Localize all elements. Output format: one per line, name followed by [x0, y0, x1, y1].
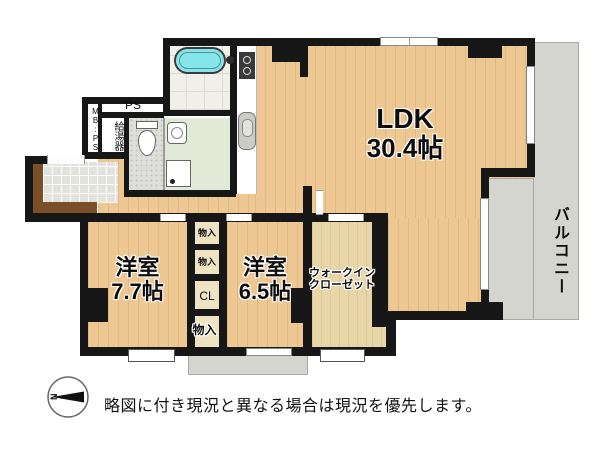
wall-bedroom-left-outer [80, 218, 88, 356]
wall-storage-divider-2 [190, 274, 224, 281]
water-heater-label: 給湯器 [104, 119, 122, 153]
window-bedroom-center [246, 348, 292, 356]
wall-ps-bottom [100, 112, 164, 118]
wall-storage-divider-1 [190, 244, 224, 250]
compass-icon: N [46, 375, 90, 419]
wall-left-outer [25, 156, 33, 219]
compass-north-letter: N [49, 394, 59, 401]
bedroom-left-door [160, 214, 186, 221]
bathtub-icon [174, 47, 226, 74]
stove-burner-2 [243, 67, 251, 75]
wall-washroom-bottom [124, 190, 236, 197]
compass: N [46, 375, 90, 419]
bedroom-left-size: 7.7帖 [88, 280, 187, 304]
washbasin-icon [167, 122, 187, 144]
storage-bottom-label: 物入 [188, 324, 221, 337]
disclaimer-text: 略図に付き現況と異なる場合は現況を優先します。 [104, 392, 564, 416]
floorplan-canvas: LDK 30.4帖 洋室 7.7帖 洋室 6.5帖 ウォークイン クローゼット … [0, 0, 600, 450]
wall-mbps-bottom [82, 152, 128, 159]
pipe-space-label: PS [102, 99, 164, 112]
storage-top-label: 物入 [193, 229, 221, 239]
wall-pillar-bottom-right [466, 302, 503, 320]
window-bedroom-left [128, 349, 175, 362]
kitchen-sink-icon [238, 112, 256, 150]
window-top-mullion [409, 37, 410, 46]
wall-bath-left [163, 38, 170, 116]
bathtub-inner-line [179, 52, 221, 69]
bedroom-center-door [226, 214, 252, 221]
balcony-door-right [480, 198, 489, 290]
washing-machine-drain [170, 179, 175, 184]
stove-burner-1 [243, 56, 251, 64]
genkan-tile [43, 162, 118, 203]
entrance-door [47, 155, 85, 164]
wall-step-right [481, 168, 535, 177]
wic-line2: クローゼット [303, 280, 381, 292]
window-right-upper [526, 66, 535, 144]
wall-pillar-top-mid-tail [300, 62, 308, 77]
hall-ldk-door [316, 190, 323, 215]
wall-pillar-top-right [468, 38, 502, 58]
bath-faucet-icon [226, 56, 234, 64]
bedroom-left-label: 洋室 7.7帖 [88, 256, 187, 304]
stove-icon [239, 52, 255, 79]
kitchen-sink-basin [242, 119, 253, 137]
balcony-label: バルコニー [546, 188, 568, 313]
washing-machine-pan-icon [166, 160, 191, 187]
genkan-frame-horizontal [33, 202, 97, 213]
wall-toilet-washroom-divider [163, 118, 165, 190]
bedroom-center-label: 洋室 6.5帖 [227, 256, 303, 304]
bedroom-left-name: 洋室 [88, 256, 187, 280]
ldk-size: 30.4帖 [330, 134, 480, 162]
closet-label: CL [193, 290, 221, 303]
storage-mid-label: 物入 [193, 258, 221, 268]
wall-toilet-left [124, 116, 129, 194]
wall-ldk-bottom [386, 311, 468, 320]
ldk-name: LDK [330, 104, 480, 134]
balcony-bottom-small [188, 355, 308, 375]
wall-bath-bottom [163, 110, 236, 116]
washbasin-bowl [171, 127, 183, 139]
wall-hall-ldk [303, 186, 312, 216]
ldk-label: LDK 30.4帖 [330, 104, 480, 162]
walk-in-closet-door [328, 214, 364, 221]
wall-storage-divider-3 [190, 309, 224, 316]
window-walk-in-closet [320, 349, 365, 362]
walk-in-closet-label: ウォークイン クローゼット [303, 268, 381, 292]
toilet-tank-icon [136, 121, 158, 129]
bedroom-center-size: 6.5帖 [227, 280, 303, 304]
meter-box-label: MB:PS [86, 105, 99, 153]
balcony-right-lower [487, 178, 534, 320]
wall-pillar-top-mid [272, 38, 308, 62]
bedroom-center-name: 洋室 [227, 256, 303, 280]
wall-entry-top [25, 156, 48, 164]
